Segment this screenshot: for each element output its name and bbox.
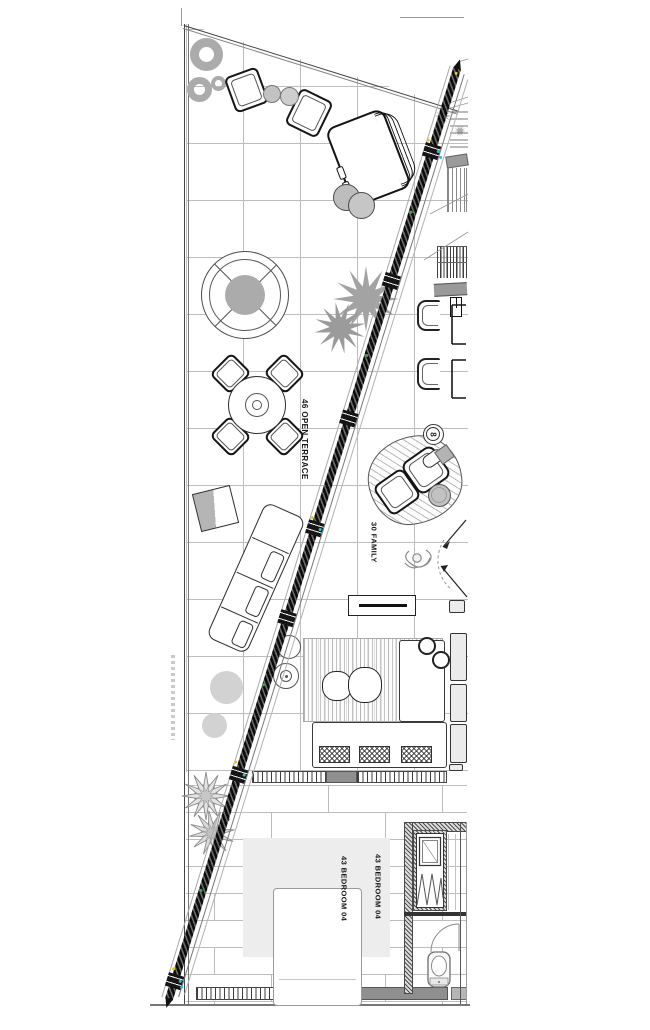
- wall-seat-2: [450, 684, 467, 722]
- cad-dot-yellow: [454, 71, 458, 75]
- ground-planter-2: [202, 713, 227, 738]
- cad-dot-green: [365, 353, 369, 357]
- label-family: 30 FAMILY: [370, 522, 378, 563]
- side-table-2: [280, 87, 299, 106]
- cad-dot-cyan: [180, 985, 184, 989]
- chair-seat-line: [422, 305, 438, 326]
- cad-dot-cyan: [178, 979, 182, 983]
- planter-shrub: [225, 275, 265, 315]
- dining-table: [228, 376, 286, 434]
- coffee-table-lobe-2: [348, 667, 382, 703]
- left-boundary-line: [184, 24, 189, 1004]
- round-table-1: [418, 637, 436, 655]
- parapet-band: [434, 282, 468, 297]
- bathroom-divider-wall: [404, 912, 467, 916]
- bed-fold-line: [279, 979, 356, 980]
- right-wall-line-b: [466, 822, 467, 1004]
- bed: [273, 888, 362, 1006]
- cad-dot-green: [409, 210, 413, 214]
- ground-planter-1: [210, 671, 243, 704]
- floor-lamp-inner: 8: [426, 427, 440, 441]
- label-bedroom-2: 43 BEDROOM 04: [374, 854, 382, 919]
- wall-seat-0: [449, 600, 465, 613]
- pouf-2: [348, 192, 375, 219]
- wardrobe-interior: [416, 833, 444, 908]
- wall-seat-1: [450, 633, 467, 681]
- floor-plan-canvas: 8: [0, 0, 650, 1030]
- chair-cushion-line: [379, 474, 415, 510]
- side-table-1: [263, 85, 281, 103]
- cad-dot-yellow: [172, 966, 176, 970]
- dining-table-center: [252, 400, 262, 410]
- sofa-cushion-2: [359, 746, 390, 763]
- cad-dot-green: [199, 888, 203, 892]
- clipped-fixture: [450, 297, 462, 317]
- dimension-note: [171, 655, 175, 740]
- sofa-cushion-3: [401, 746, 432, 763]
- round-planter: [201, 251, 289, 339]
- wall-tip-bottom: [162, 997, 173, 1009]
- label-bedroom-1: 43 BEDROOM 04: [340, 856, 348, 921]
- tv-screen: [359, 604, 407, 607]
- tv-console: [348, 595, 416, 616]
- survey-tick: [181, 8, 182, 26]
- bedroom-left-wall: [404, 822, 413, 994]
- cad-dot-yellow: [310, 515, 314, 519]
- right-wall-line-a: [460, 822, 461, 1004]
- cad-dot-cyan: [436, 149, 440, 153]
- cad-dot-yellow: [234, 760, 238, 764]
- low-wall-hatch-right: [357, 771, 447, 783]
- hedge-band: [437, 246, 467, 278]
- hedge-divider: [437, 262, 467, 263]
- low-wall-solid: [326, 771, 357, 783]
- planter-ring-small: [211, 76, 226, 91]
- wall-seat-4: [449, 764, 463, 771]
- wall-seat-3: [450, 724, 467, 763]
- floor-lamp: 8: [423, 424, 444, 445]
- floor-lamp-number: 8: [428, 432, 437, 436]
- chair-seat-line: [422, 363, 438, 385]
- cad-dot-cyan: [242, 773, 246, 777]
- u-chair-1: [417, 300, 440, 331]
- label-open-terrace: 46 OPEN TERRACE: [300, 399, 308, 480]
- chair-back-line: [230, 73, 263, 108]
- cad-dot-yellow: [426, 138, 430, 142]
- cad-dot-cyan: [439, 155, 443, 159]
- nook-pouf: [428, 484, 451, 507]
- wall-tip-top: [453, 58, 464, 70]
- cad-dot-cyan: [318, 527, 322, 531]
- u-chair-2: [417, 358, 440, 390]
- cad-dot-green: [262, 682, 266, 686]
- planter-ring-medium: [187, 77, 212, 102]
- neighbor-line: [400, 17, 464, 18]
- sofa-cushion-1: [319, 746, 350, 763]
- pouf-inner-ring: [431, 487, 447, 503]
- stair-tread-band: [447, 168, 467, 212]
- low-wall-hatch-left: [252, 771, 326, 783]
- wardrobe-shelf-lines: [448, 834, 456, 910]
- fixture-line: [456, 298, 457, 308]
- planter-ring-large: [190, 38, 223, 71]
- round-table-2: [432, 651, 450, 669]
- pot-center-dot: [285, 675, 288, 678]
